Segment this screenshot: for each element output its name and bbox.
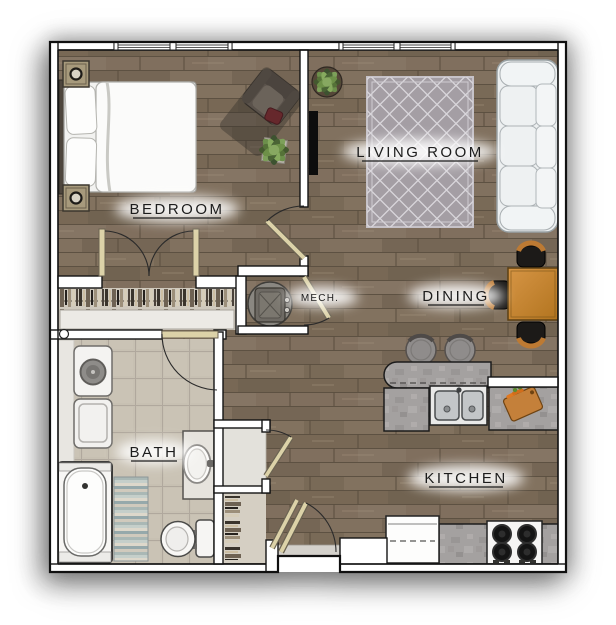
bath-ledge	[58, 340, 74, 462]
mech-label: MECH.	[301, 293, 339, 304]
entry-notch	[276, 556, 342, 572]
bathtub	[58, 462, 112, 563]
bedroom-south-wall	[58, 276, 102, 288]
pillow	[65, 137, 97, 186]
faucet	[456, 387, 461, 392]
mech-wall	[238, 266, 308, 276]
pillow	[65, 85, 97, 135]
range-cooktop	[487, 521, 542, 564]
washer	[74, 346, 112, 396]
living-room-label: LIVING ROOM	[356, 144, 484, 161]
bedroom-closet	[58, 288, 236, 330]
coat-closet	[223, 493, 266, 563]
dining-label: DINING	[422, 288, 490, 305]
bar-stool	[406, 335, 436, 365]
nightstand	[63, 61, 89, 87]
dryer	[74, 399, 112, 448]
potted-plant	[312, 67, 342, 97]
floor-plan-drawing: BEDROOM LIVING ROOM DINING KITCHEN BATH …	[0, 0, 616, 625]
toilet	[161, 520, 214, 557]
sofa-arm	[500, 206, 555, 230]
linen-closet	[223, 428, 266, 486]
window	[339, 42, 455, 50]
sofa	[497, 60, 558, 232]
bath-mat	[114, 477, 148, 561]
sink-faucet	[207, 460, 214, 467]
hanging-clothes	[60, 289, 234, 310]
bath-label: BATH	[130, 444, 179, 461]
dining-chair	[517, 322, 545, 346]
mech-wall	[238, 326, 308, 334]
bath-east-wall	[214, 332, 223, 564]
water-heater	[248, 282, 292, 326]
dining-table	[508, 268, 558, 320]
queen-bed	[59, 80, 196, 194]
bar-stool	[445, 335, 475, 365]
kitchen-divider-wall	[488, 377, 558, 387]
bedroom-living-wall	[300, 50, 308, 207]
floor-plan: BEDROOM LIVING ROOM DINING KITCHEN BATH …	[0, 0, 616, 625]
wall-tv	[309, 111, 318, 175]
wall-detail-circle	[60, 330, 69, 339]
double-sink	[430, 386, 487, 425]
hanging-clothes	[225, 496, 241, 560]
window	[114, 42, 232, 50]
vanity-sink	[183, 431, 214, 499]
closet-shelf	[60, 310, 234, 329]
bedroom-label: BEDROOM	[129, 201, 224, 218]
bedroom-south-wall	[196, 276, 242, 288]
tub-faucet	[82, 483, 88, 489]
sofa-arm	[500, 62, 555, 86]
refrigerator	[386, 516, 439, 563]
potted-plant	[259, 135, 289, 165]
dining-chair	[517, 243, 545, 267]
kitchen-label: KITCHEN	[424, 470, 507, 487]
nightstand	[63, 185, 89, 211]
